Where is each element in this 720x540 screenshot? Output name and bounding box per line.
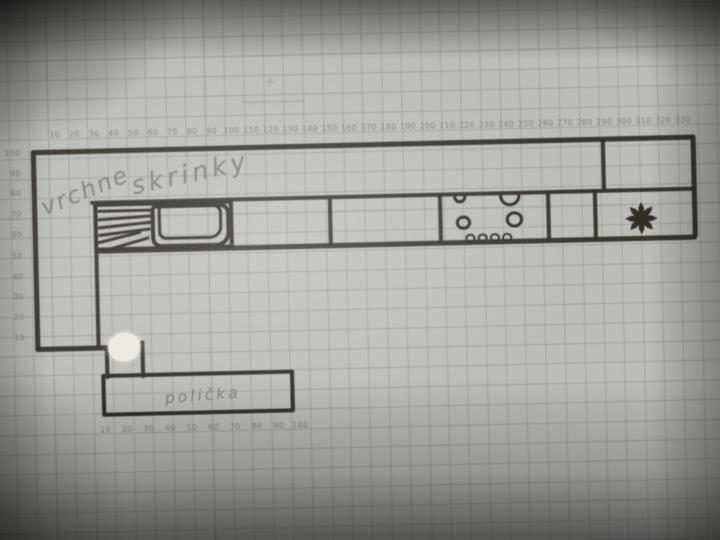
photo-frame: 1020304050607080901001101201301401501601… (0, 0, 720, 540)
ruler-bottom: 102030405060708090100 (0, 0, 720, 3)
ruler-number: 310 (634, 116, 653, 126)
ruler-top: 1020304050607080901001101201301401501601… (0, 0, 720, 3)
stray-plus-mark: + (263, 74, 277, 92)
sink-basin-inner (157, 204, 222, 240)
ruler-number: 30 (141, 424, 158, 434)
stove-burner-large-arc (499, 194, 521, 207)
upper-band-divider (601, 139, 606, 191)
ruler-number: 290 (595, 117, 614, 127)
ruler-number: 40 (104, 129, 123, 139)
ruler-number: 140 (301, 124, 320, 134)
ruler-number: 320 (654, 116, 673, 126)
ruler-number: 20 (6, 312, 25, 322)
ruler-number: 100 (2, 148, 21, 158)
ruler-number: 40 (162, 423, 179, 433)
ruler-number: 190 (399, 122, 418, 132)
ruler-number: 80 (183, 127, 202, 137)
ruler-number: 70 (163, 127, 182, 137)
counter-divider-3 (546, 190, 551, 241)
ruler-number: 220 (458, 120, 477, 130)
ruler-number: 260 (536, 118, 555, 128)
correction-blob (107, 332, 140, 361)
ruler-number: 270 (556, 118, 575, 128)
ruler-number: 130 (281, 125, 300, 135)
counter-divider-1 (328, 197, 333, 246)
ruler-number: 50 (124, 128, 143, 138)
ruler-number: 60 (205, 422, 222, 432)
ruler-number: 10 (6, 333, 25, 343)
star-symbol (624, 201, 659, 236)
ruler-number: 180 (379, 122, 398, 132)
outline-left-edge (31, 150, 40, 351)
ruler-number: 120 (261, 125, 280, 135)
ruler-number: 100 (292, 420, 309, 430)
ruler-left: 100908070605040302010 (0, 0, 720, 3)
ruler-number: 280 (576, 118, 595, 128)
ruler-number: 70 (4, 210, 23, 220)
ruler-number: 330 (674, 115, 693, 125)
ruler-number: 50 (5, 251, 24, 261)
ruler-number: 90 (203, 126, 222, 136)
stove-burner-circle-1 (456, 215, 472, 230)
stove-burner-small-arc (453, 195, 466, 203)
ruler-number: 80 (249, 421, 266, 431)
ruler-number: 60 (4, 230, 23, 240)
ruler-number: 10 (46, 130, 65, 140)
ruler-number: 30 (5, 292, 24, 302)
stove-burner-circle-2 (506, 211, 524, 228)
ruler-number: 10 (97, 425, 114, 435)
graph-paper-sheet: 1020304050607080901001101201301401501601… (0, 0, 720, 540)
faint-dash (242, 100, 305, 103)
ruler-number: 160 (340, 123, 359, 133)
ruler-number: 80 (3, 189, 22, 199)
ruler-number: 250 (517, 119, 536, 129)
ruler-number: 40 (5, 271, 24, 281)
ruler-number: 70 (227, 422, 244, 432)
ruler-number: 20 (119, 424, 136, 434)
ruler-number: 300 (615, 117, 634, 127)
ruler-number: 110 (242, 125, 261, 135)
ruler-number: 30 (85, 129, 104, 139)
ruler-number: 150 (320, 124, 339, 134)
ruler-number: 50 (184, 423, 201, 433)
arm-right-edge (94, 249, 100, 350)
ruler-number: 170 (360, 123, 379, 133)
counter-divider-4 (593, 189, 598, 240)
label-upper-cabinets-word2: skrinky (128, 146, 252, 201)
counter-divider-2 (438, 195, 443, 244)
ruler-number: 60 (144, 128, 163, 138)
ruler-number: 230 (477, 120, 496, 130)
ruler-number: 200 (418, 121, 437, 131)
ruler-number: 90 (3, 169, 22, 179)
ruler-number: 100 (222, 126, 241, 136)
ruler-number: 90 (270, 421, 287, 431)
ruler-number: 210 (438, 121, 457, 131)
ruler-number: 20 (65, 130, 84, 140)
ruler-number: 240 (497, 119, 516, 129)
kitchen-plan: 1020304050607080901001101201301401501601… (0, 0, 720, 540)
